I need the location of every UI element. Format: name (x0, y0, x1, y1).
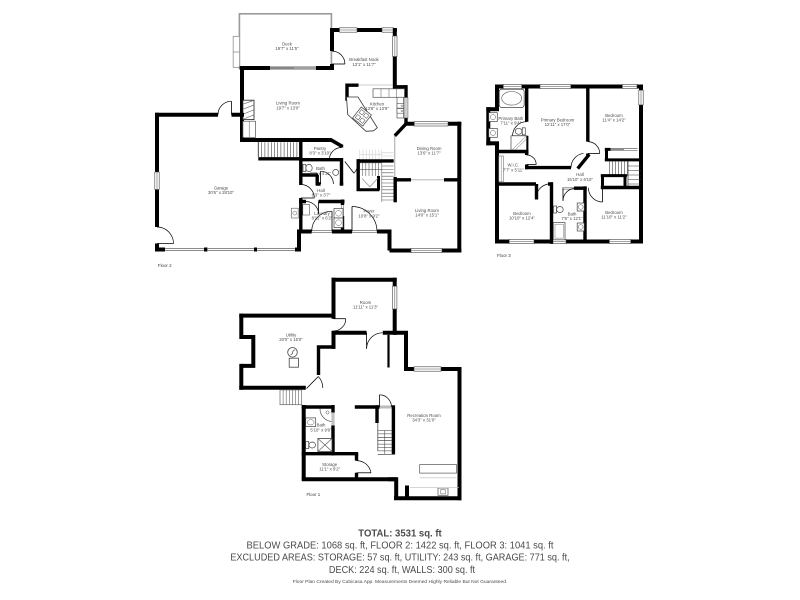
svg-text:12'11" x 17'0": 12'11" x 17'0" (545, 122, 571, 127)
svg-text:11'1" x 9'2": 11'1" x 9'2" (319, 467, 340, 472)
svg-text:7'11" x 9'4": 7'11" x 9'4" (500, 121, 521, 126)
svg-text:Floor 3: Floor 3 (497, 253, 511, 258)
svg-text:13'6" x 11'7": 13'6" x 11'7" (417, 151, 441, 156)
svg-text:8'3" x 3'10": 8'3" x 3'10" (309, 151, 331, 156)
svg-text:7'6" x 12'1": 7'6" x 12'1" (561, 216, 583, 221)
svg-text:DECK: 224 sq. ft, WALLS: 300 s: DECK: 224 sq. ft, WALLS: 300 sq. ft (329, 564, 475, 576)
svg-text:TOTAL: 3531 sq. ft: TOTAL: 3531 sq. ft (358, 527, 442, 539)
svg-text:11'10" x 11'2": 11'10" x 11'2" (601, 215, 627, 220)
svg-text:10'8" x 9'2": 10'8" x 9'2" (358, 213, 380, 218)
svg-text:Floor 2: Floor 2 (158, 263, 172, 268)
svg-text:5'10" x 9'9": 5'10" x 9'9" (310, 427, 332, 432)
svg-text:8'11" x 6'2": 8'11" x 6'2" (312, 216, 333, 221)
svg-text:BELOW GRADE: 1068 sq. ft, FLOO: BELOW GRADE: 1068 sq. ft, FLOOR 2: 1422 … (247, 540, 554, 552)
svg-text:34'3" x 31'0": 34'3" x 31'0" (412, 418, 436, 423)
svg-text:10'10" x 12'4": 10'10" x 12'4" (509, 216, 535, 221)
svg-text:11'11" x 11'3": 11'11" x 11'3" (353, 305, 378, 310)
svg-text:30'6" x 28'10": 30'6" x 28'10" (208, 190, 234, 195)
svg-text:8'3" x 4'11": 8'3" x 4'11" (310, 171, 331, 176)
svg-text:14'0" x 15'1": 14'0" x 15'1" (415, 213, 439, 218)
svg-text:13'1" x 11'7": 13'1" x 11'7" (352, 62, 376, 67)
svg-text:Floor Plan Created By Cubicasa: Floor Plan Created By Cubicasa App. Meas… (293, 579, 508, 585)
svg-text:20'0" x 15'0": 20'0" x 15'0" (279, 337, 303, 342)
svg-text:8'3" x 3'7": 8'3" x 3'7" (312, 193, 331, 198)
svg-text:7'7" x 5'11": 7'7" x 5'11" (503, 167, 524, 172)
svg-text:EXCLUDED AREAS: STORAGE: 57 sq: EXCLUDED AREAS: STORAGE: 57 sq. ft, UTIL… (230, 552, 569, 564)
svg-text:19'7" x 13'0": 19'7" x 13'0" (276, 106, 300, 111)
svg-text:11'4" x 14'2": 11'4" x 14'2" (602, 118, 626, 123)
svg-text:Floor 1: Floor 1 (307, 492, 321, 497)
svg-text:15'10" x 6'10": 15'10" x 6'10" (567, 177, 593, 182)
svg-text:19'7" x 11'5": 19'7" x 11'5" (275, 46, 299, 51)
svg-text:13'8" x 13'9": 13'8" x 13'9" (365, 106, 389, 111)
